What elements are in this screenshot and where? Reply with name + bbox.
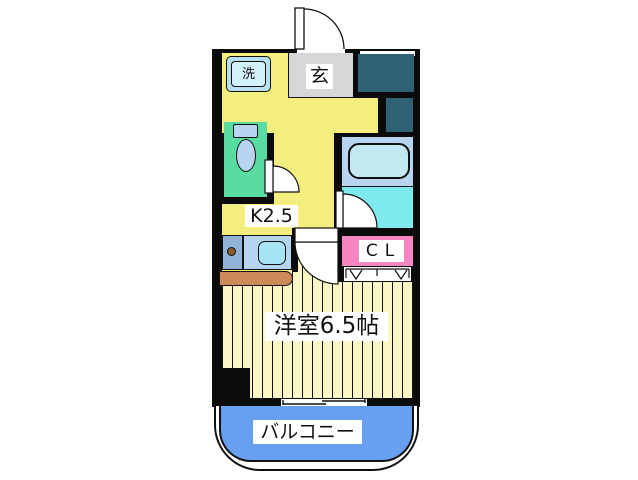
- room-door-leaf: [295, 228, 338, 242]
- bathroom-door-leaf: [336, 191, 343, 228]
- room-door-arc: [295, 242, 338, 284]
- bathroom-door-arc: [343, 194, 377, 228]
- door-symbols-overlay: [0, 0, 638, 480]
- floorplan-canvas: { "floorplan": { "rooms": { "kitchen": {…: [0, 0, 638, 480]
- entrance-door-leaf: [295, 8, 304, 49]
- toilet-door-arc: [273, 166, 299, 192]
- closet-folding-door-symbol: [346, 269, 409, 279]
- toilet-door-leaf: [265, 160, 273, 193]
- entrance-door-arc: [304, 9, 344, 49]
- balcony-window-symbol: [283, 399, 365, 405]
